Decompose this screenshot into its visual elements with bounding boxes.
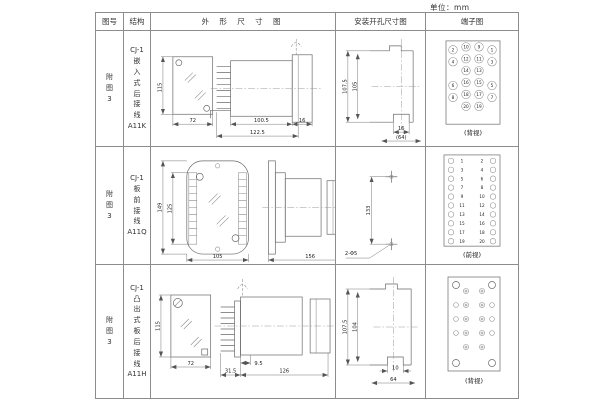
terminal-number: 18	[479, 230, 485, 235]
dim-label: 149	[157, 203, 163, 213]
terminal-circle	[448, 221, 454, 227]
terminal-number: 12	[463, 56, 469, 61]
terminal-circle	[490, 167, 496, 173]
terminal-circle	[490, 185, 496, 191]
header-col-outline: 外 形 尺 寸 图	[151, 13, 336, 31]
screw-terminals	[454, 288, 495, 349]
header-col-structure: 结构	[124, 13, 151, 31]
dim-label: 100.5	[254, 118, 269, 124]
dim-label: (64)	[396, 135, 407, 141]
terminal-number: 13	[476, 68, 482, 73]
terminal-cell-a11q: 1234567891011121314151617181920 (前视)	[426, 147, 518, 265]
terminal-circle	[490, 221, 496, 227]
hook-mark	[238, 279, 248, 297]
terminal-cell-a11k: 2109141211314136161558181772019 (背视)	[426, 31, 518, 147]
dim-label: 10	[392, 365, 399, 371]
terminal-number: 3	[491, 59, 494, 64]
dim-label: 31.5	[225, 368, 236, 374]
terminal-number: 8	[452, 95, 455, 100]
header-col-install: 安装开孔尺寸图	[336, 13, 426, 31]
view-caption: (背视)	[464, 128, 482, 137]
terminal-circle	[448, 167, 454, 173]
terminal-number: 8	[481, 185, 484, 190]
terminal-number: 10	[463, 44, 469, 49]
corner-fixture	[202, 349, 208, 355]
terminal-number: 3	[461, 167, 464, 172]
terminal-number: 6	[452, 83, 455, 88]
outline-cell-a11q: 149 125 105 156 113	[151, 147, 336, 265]
glass-hatch	[185, 73, 206, 101]
terminal-number: 11	[476, 56, 482, 61]
dim-label: 72	[187, 361, 194, 367]
screw	[215, 164, 219, 168]
terminal-number: 9	[478, 44, 481, 49]
terminal-number: 1	[461, 158, 464, 163]
dim-label: 122.5	[250, 130, 265, 136]
install-cell-a11h: 107.5 104 10 64	[336, 265, 426, 398]
terminal-circle	[453, 360, 460, 367]
dim-label: 16	[299, 118, 306, 124]
terminal-number: 5	[461, 176, 464, 181]
dim-label: 104	[352, 322, 358, 332]
structure-label-row2: CJ-1 板 前 接 线 A11Q	[124, 147, 151, 265]
pin-plate	[235, 301, 241, 357]
terminal-circle	[489, 360, 496, 367]
install-drawing-a11q: 133 2-Φ5	[336, 147, 425, 264]
glass-hatch	[181, 319, 202, 347]
terminal-circle	[448, 194, 454, 200]
terminal-number: 19	[459, 239, 465, 244]
terminal-circle	[453, 282, 460, 289]
terminal-number: 6	[481, 176, 484, 181]
terminal-circle	[448, 212, 454, 218]
outline-cell-a11h: 115 72 31.5 9.5 126	[151, 265, 336, 398]
outline-drawing-a11h: 115 72 31.5 9.5 126	[151, 265, 335, 398]
terminal-number: 2	[452, 47, 455, 52]
terminal-number: 17	[476, 92, 482, 97]
terminal-number: 10	[479, 194, 485, 199]
screw	[215, 247, 219, 251]
terminal-circle	[490, 203, 496, 209]
terminal-pins	[221, 307, 235, 351]
dim-label: 72	[189, 118, 196, 124]
terminal-circle	[490, 194, 496, 200]
glass-hatch	[209, 194, 229, 227]
install-drawing-a11h: 107.5 104 10 64	[336, 265, 425, 398]
terminal-number: 15	[459, 221, 465, 226]
terminal-number: 9	[461, 194, 464, 199]
terminal-circle	[490, 212, 496, 218]
terminal-number: 14	[463, 68, 469, 73]
document-page: 单位：mm 图号 结构 外 形 尺 寸 图 安装开孔尺寸图 端子图 附 图 3 …	[0, 0, 600, 400]
figure-number-row2: 附 图 3	[96, 147, 124, 265]
terminal-circle	[448, 229, 454, 235]
terminal-plate	[444, 155, 500, 246]
dim-label: 115	[157, 83, 163, 93]
terminal-diagram-a11q: 1234567891011121314151617181920 (前视)	[426, 147, 518, 264]
mounting-hole	[196, 173, 203, 180]
terminal-diagram-a11h: (背视)	[426, 265, 518, 398]
hole-spec-label: 2-Φ5	[345, 251, 357, 257]
view-caption: (背视)	[465, 376, 483, 385]
spec-table: 图号 结构 外 形 尺 寸 图 安装开孔尺寸图 端子图 附 图 3 CJ-1 嵌…	[95, 12, 519, 399]
terminal-number: 12	[479, 203, 485, 208]
terminal-circle	[448, 158, 454, 164]
terminal-number: 4	[481, 167, 484, 172]
terminal-strip-left	[189, 173, 197, 244]
terminal-strip-right	[239, 173, 247, 244]
figure-number-row1: 附 图 3	[96, 31, 124, 147]
mounting-hole	[204, 105, 210, 111]
terminal-diagram-a11k: 2109141211314136161558181772019 (背视)	[426, 31, 518, 146]
mounting-hole	[232, 235, 239, 242]
terminal-number: 17	[459, 230, 465, 235]
hook-mark	[291, 39, 301, 55]
dim-label: 126	[279, 368, 289, 374]
header-col-terminal: 端子图	[426, 13, 518, 31]
terminal-number: 18	[463, 92, 469, 97]
terminal-number: 11	[459, 203, 465, 208]
structure-label-row3: CJ-1 凸 出 式 板 后 接 线 A11H	[124, 265, 151, 398]
terminal-circle	[448, 176, 454, 182]
terminal-number: 5	[491, 83, 494, 88]
terminal-number: 2	[481, 158, 484, 163]
dim-label: 105	[352, 82, 358, 92]
structure-label-row1: CJ-1 嵌 入 式 后 接 线 A11K	[124, 31, 151, 147]
view-caption: (前视)	[463, 250, 481, 259]
terminal-circle	[489, 282, 496, 289]
dim-label: 133	[366, 206, 372, 216]
terminal-circle	[448, 185, 454, 191]
dim-label: 156	[305, 254, 315, 260]
dim-label: 125	[167, 204, 173, 214]
panel-cutout	[370, 284, 412, 365]
figure-number-row3: 附 图 3	[96, 265, 124, 398]
header-col-figure: 图号	[96, 13, 124, 31]
terminal-number: 20	[479, 239, 485, 244]
terminal-number: 16	[463, 80, 469, 85]
terminal-number: 20	[463, 104, 469, 109]
dim-label: 16	[398, 126, 405, 132]
terminal-number: 4	[452, 59, 455, 64]
panel-cutout	[370, 46, 414, 122]
terminal-number: 13	[459, 212, 465, 217]
outline-cell-a11k: 115 72 100.5 16 122.5	[151, 31, 336, 147]
terminal-pins	[217, 67, 231, 109]
install-drawing-a11k: 107.5 105 16 (64)	[336, 31, 425, 146]
hole-cross-marks	[385, 171, 397, 250]
terminal-number: 14	[479, 212, 485, 217]
dim-label: 9.5	[254, 361, 262, 367]
outline-drawing-a11q: 149 125 105 156 113	[151, 147, 335, 264]
terminal-circle	[490, 158, 496, 164]
terminal-number: 16	[479, 221, 485, 226]
terminal-number: 7	[491, 95, 494, 100]
terminal-circle	[448, 203, 454, 209]
mounting-hole	[176, 60, 182, 66]
dim-label: 107.5	[342, 79, 348, 94]
terminal-number: 1	[491, 47, 494, 52]
dim-label: 105	[213, 254, 223, 260]
install-cell-a11k: 107.5 105 16 (64)	[336, 31, 426, 147]
terminal-circle	[448, 238, 454, 244]
terminal-cell-a11h: (背视)	[426, 265, 518, 398]
terminal-circle	[490, 176, 496, 182]
terminal-number: 7	[461, 185, 464, 190]
terminal-circle	[490, 229, 496, 235]
dim-label: 64	[390, 377, 397, 383]
dim-label: 115	[155, 321, 161, 331]
terminal-number: 15	[476, 80, 482, 85]
terminal-circle	[490, 238, 496, 244]
terminal-number: 19	[476, 104, 482, 109]
terminal-plate	[448, 277, 500, 371]
outline-drawing-a11k: 115 72 100.5 16 122.5	[151, 31, 335, 146]
dim-label: 107.5	[342, 320, 348, 335]
install-cell-a11q: 133 2-Φ5	[336, 147, 426, 265]
